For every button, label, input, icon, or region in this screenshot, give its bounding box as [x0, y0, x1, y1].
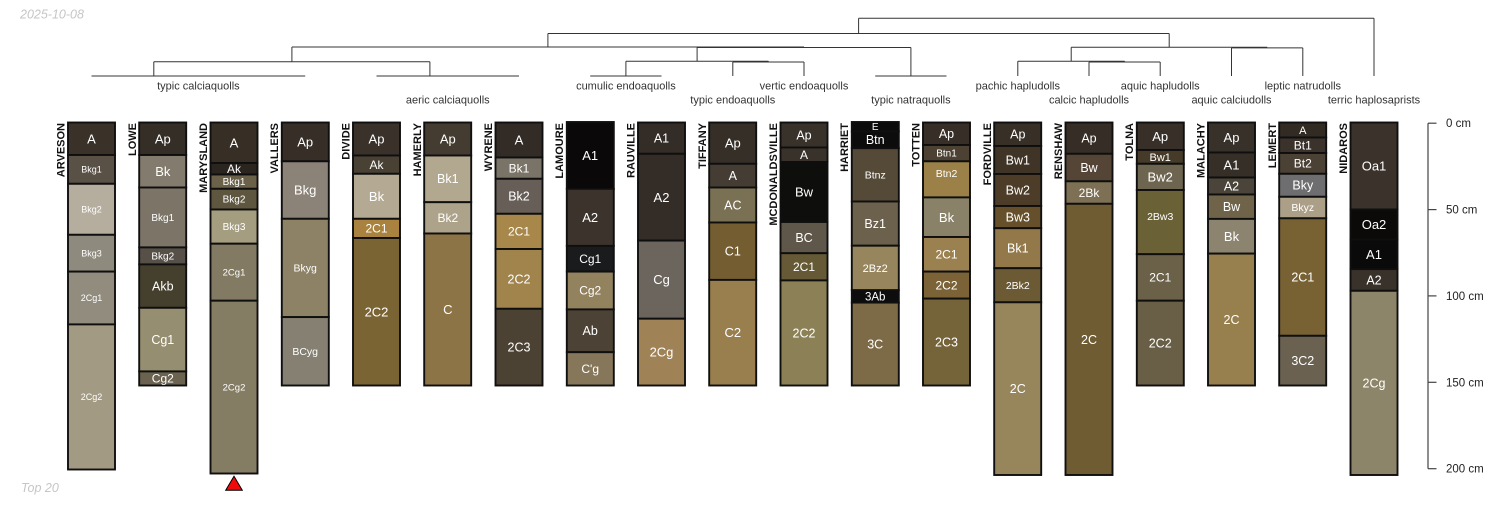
svg-text:Bw2: Bw2	[1006, 183, 1030, 197]
svg-text:Cg1: Cg1	[151, 333, 174, 347]
svg-text:A: A	[87, 131, 96, 146]
svg-text:Cg2: Cg2	[152, 372, 174, 386]
svg-text:Bw1: Bw1	[1149, 152, 1170, 164]
svg-text:leptic natrudolls: leptic natrudolls	[1265, 81, 1342, 93]
svg-text:typic calciaquolls: typic calciaquolls	[157, 81, 240, 93]
svg-text:2C1: 2C1	[508, 225, 530, 239]
svg-text:Ap: Ap	[369, 132, 385, 147]
svg-text:Bk1: Bk1	[437, 172, 459, 186]
svg-text:RAUVILLE: RAUVILLE	[626, 123, 638, 178]
svg-text:Bt1: Bt1	[1294, 138, 1312, 152]
svg-text:150 cm: 150 cm	[1446, 377, 1484, 389]
svg-text:2C: 2C	[1224, 313, 1240, 327]
svg-text:100 cm: 100 cm	[1446, 291, 1484, 303]
svg-text:3C2: 3C2	[1291, 354, 1314, 368]
svg-text:Bkg1: Bkg1	[223, 177, 246, 188]
svg-text:Bkg: Bkg	[294, 183, 316, 198]
svg-text:Bk2: Bk2	[508, 190, 530, 204]
svg-text:A: A	[729, 169, 738, 183]
svg-text:LEMERT: LEMERT	[1267, 123, 1279, 169]
svg-text:Bkg1: Bkg1	[81, 165, 102, 175]
svg-text:Ap: Ap	[796, 128, 811, 142]
svg-text:Bk: Bk	[155, 164, 171, 179]
svg-text:Bt2: Bt2	[1294, 157, 1312, 171]
svg-text:2C3: 2C3	[935, 335, 958, 349]
svg-text:Akb: Akb	[152, 280, 174, 294]
svg-text:Bkg2: Bkg2	[81, 205, 102, 215]
svg-text:Ap: Ap	[1010, 128, 1025, 142]
svg-text:2C3: 2C3	[508, 341, 531, 355]
svg-text:typic natraquolls: typic natraquolls	[871, 95, 951, 107]
svg-text:A2: A2	[1366, 273, 1381, 287]
svg-text:2C1: 2C1	[1149, 271, 1171, 285]
svg-text:MCDONALDSVILLE: MCDONALDSVILLE	[768, 123, 780, 226]
svg-text:Bky: Bky	[1292, 179, 1314, 193]
svg-text:2Bk2: 2Bk2	[1006, 280, 1030, 292]
svg-text:2C1: 2C1	[935, 248, 957, 262]
svg-text:A1: A1	[654, 132, 669, 146]
svg-text:2Bw3: 2Bw3	[1147, 211, 1173, 223]
svg-text:Ab: Ab	[583, 324, 598, 338]
svg-text:A: A	[515, 133, 524, 148]
svg-text:TIFFANY: TIFFANY	[697, 122, 709, 168]
svg-text:2C1: 2C1	[365, 222, 387, 236]
svg-text:Btn: Btn	[866, 133, 885, 147]
svg-text:Ap: Ap	[939, 127, 954, 141]
svg-text:MALACHY: MALACHY	[1196, 122, 1208, 178]
svg-text:A: A	[1299, 125, 1307, 137]
svg-text:HARRIET: HARRIET	[839, 123, 851, 172]
svg-text:2Cg1: 2Cg1	[223, 268, 246, 279]
svg-text:cumulic endoaquolls: cumulic endoaquolls	[576, 81, 676, 93]
svg-text:Bz1: Bz1	[864, 217, 886, 231]
svg-text:2C2: 2C2	[508, 272, 531, 286]
svg-text:2C2: 2C2	[365, 304, 389, 319]
svg-text:2C2: 2C2	[935, 278, 957, 292]
svg-text:Cg: Cg	[653, 272, 670, 287]
svg-text:2C1: 2C1	[793, 260, 815, 274]
svg-text:FORDVILLE: FORDVILLE	[982, 123, 994, 185]
svg-text:typic endoaquolls: typic endoaquolls	[690, 95, 776, 107]
svg-text:Btn2: Btn2	[936, 168, 958, 180]
svg-text:DIVIDE: DIVIDE	[341, 123, 353, 160]
svg-text:A2: A2	[582, 210, 598, 225]
svg-text:Oa2: Oa2	[1362, 217, 1387, 232]
svg-text:A1: A1	[1366, 247, 1382, 262]
svg-text:2025-10-08: 2025-10-08	[19, 8, 84, 22]
svg-text:Ap: Ap	[440, 132, 456, 147]
svg-text:Oa1: Oa1	[1362, 159, 1387, 174]
svg-text:C: C	[443, 302, 452, 317]
svg-text:Bw2: Bw2	[1148, 170, 1173, 185]
svg-text:aeric calciaquolls: aeric calciaquolls	[406, 95, 490, 107]
svg-text:Btn1: Btn1	[936, 149, 957, 160]
svg-text:BC: BC	[795, 231, 812, 245]
svg-text:MARYSLAND: MARYSLAND	[198, 123, 210, 193]
svg-text:aquic calciudolls: aquic calciudolls	[1191, 95, 1272, 107]
svg-text:Bkyz: Bkyz	[1291, 202, 1314, 214]
svg-text:calcic hapludolls: calcic hapludolls	[1049, 95, 1130, 107]
svg-text:Bkg1: Bkg1	[151, 213, 174, 224]
svg-text:pachic hapludolls: pachic hapludolls	[976, 81, 1061, 93]
svg-text:A: A	[800, 148, 808, 162]
svg-text:A: A	[230, 135, 239, 150]
svg-text:LAMOURE: LAMOURE	[554, 123, 566, 179]
svg-text:A1: A1	[1224, 158, 1240, 173]
svg-text:Bk2: Bk2	[437, 211, 458, 225]
svg-text:3Ab: 3Ab	[865, 291, 885, 303]
svg-text:Cg2: Cg2	[579, 284, 601, 298]
svg-text:Bw: Bw	[795, 185, 814, 200]
svg-text:2Bk: 2Bk	[1079, 186, 1101, 200]
svg-text:Cg1: Cg1	[579, 252, 601, 266]
svg-text:Bk: Bk	[939, 210, 955, 225]
svg-text:2Cg2: 2Cg2	[81, 392, 103, 402]
svg-text:2Cg: 2Cg	[1363, 376, 1386, 390]
svg-text:Bw3: Bw3	[1006, 211, 1030, 225]
svg-text:2Bz2: 2Bz2	[863, 263, 888, 275]
svg-text:NIDAROS: NIDAROS	[1338, 123, 1350, 174]
svg-text:2C2: 2C2	[793, 326, 816, 340]
svg-text:Bkg2: Bkg2	[223, 195, 246, 206]
svg-text:A2: A2	[1224, 179, 1239, 193]
svg-text:2C: 2C	[1010, 382, 1026, 396]
svg-text:Bk1: Bk1	[1007, 242, 1029, 256]
svg-text:HAMERLY: HAMERLY	[412, 122, 424, 176]
svg-text:C2: C2	[724, 325, 741, 340]
svg-text:Bkg3: Bkg3	[223, 222, 246, 233]
svg-text:3C: 3C	[867, 337, 883, 351]
svg-text:Bkyg: Bkyg	[294, 263, 318, 275]
svg-text:2C: 2C	[1081, 333, 1097, 347]
svg-text:C1: C1	[725, 245, 741, 259]
svg-text:BCyg: BCyg	[292, 346, 318, 358]
svg-text:WYRENE: WYRENE	[483, 123, 495, 171]
svg-text:2Cg2: 2Cg2	[223, 382, 246, 393]
svg-text:0 cm: 0 cm	[1446, 118, 1471, 130]
svg-text:Ap: Ap	[1152, 129, 1168, 144]
svg-text:Bw: Bw	[1080, 161, 1098, 175]
svg-text:aquic hapludolls: aquic hapludolls	[1121, 81, 1200, 93]
svg-text:2C2: 2C2	[1149, 337, 1172, 351]
svg-text:Bkg3: Bkg3	[81, 248, 102, 258]
svg-text:Bk: Bk	[369, 189, 385, 204]
svg-text:VALLERS: VALLERS	[269, 123, 281, 174]
svg-text:Bk: Bk	[1224, 229, 1240, 244]
svg-text:Bk1: Bk1	[509, 161, 530, 175]
svg-text:2Cg1: 2Cg1	[81, 293, 103, 303]
svg-text:Ap: Ap	[725, 136, 741, 151]
svg-text:Ak: Ak	[369, 158, 384, 172]
svg-text:2Cg: 2Cg	[650, 345, 674, 360]
svg-text:ARVESON: ARVESON	[56, 123, 68, 177]
svg-text:LOWE: LOWE	[127, 123, 139, 156]
svg-text:Bkg2: Bkg2	[151, 251, 174, 262]
svg-text:AC: AC	[724, 198, 741, 212]
svg-text:Ap: Ap	[297, 135, 313, 150]
svg-text:Btnz: Btnz	[865, 170, 886, 182]
svg-text:vertic endoaquolls: vertic endoaquolls	[760, 81, 849, 93]
svg-text:A2: A2	[654, 190, 670, 205]
svg-text:terric haplosaprists: terric haplosaprists	[1328, 95, 1421, 107]
svg-text:Bw1: Bw1	[1006, 153, 1030, 167]
svg-text:C'g: C'g	[581, 362, 599, 376]
svg-text:RENSHAW: RENSHAW	[1053, 122, 1065, 179]
svg-text:2C1: 2C1	[1291, 270, 1314, 284]
svg-text:TOTTEN: TOTTEN	[911, 123, 923, 167]
svg-text:50 cm: 50 cm	[1446, 205, 1477, 217]
svg-text:Ap: Ap	[1224, 130, 1240, 145]
svg-text:Ap: Ap	[155, 131, 171, 146]
svg-text:A1: A1	[582, 148, 598, 163]
svg-text:Bw: Bw	[1223, 200, 1241, 214]
svg-text:TOLNA: TOLNA	[1124, 123, 1136, 161]
svg-text:Ap: Ap	[1081, 132, 1096, 146]
svg-text:200 cm: 200 cm	[1446, 464, 1484, 476]
svg-text:Top 20: Top 20	[21, 481, 59, 495]
